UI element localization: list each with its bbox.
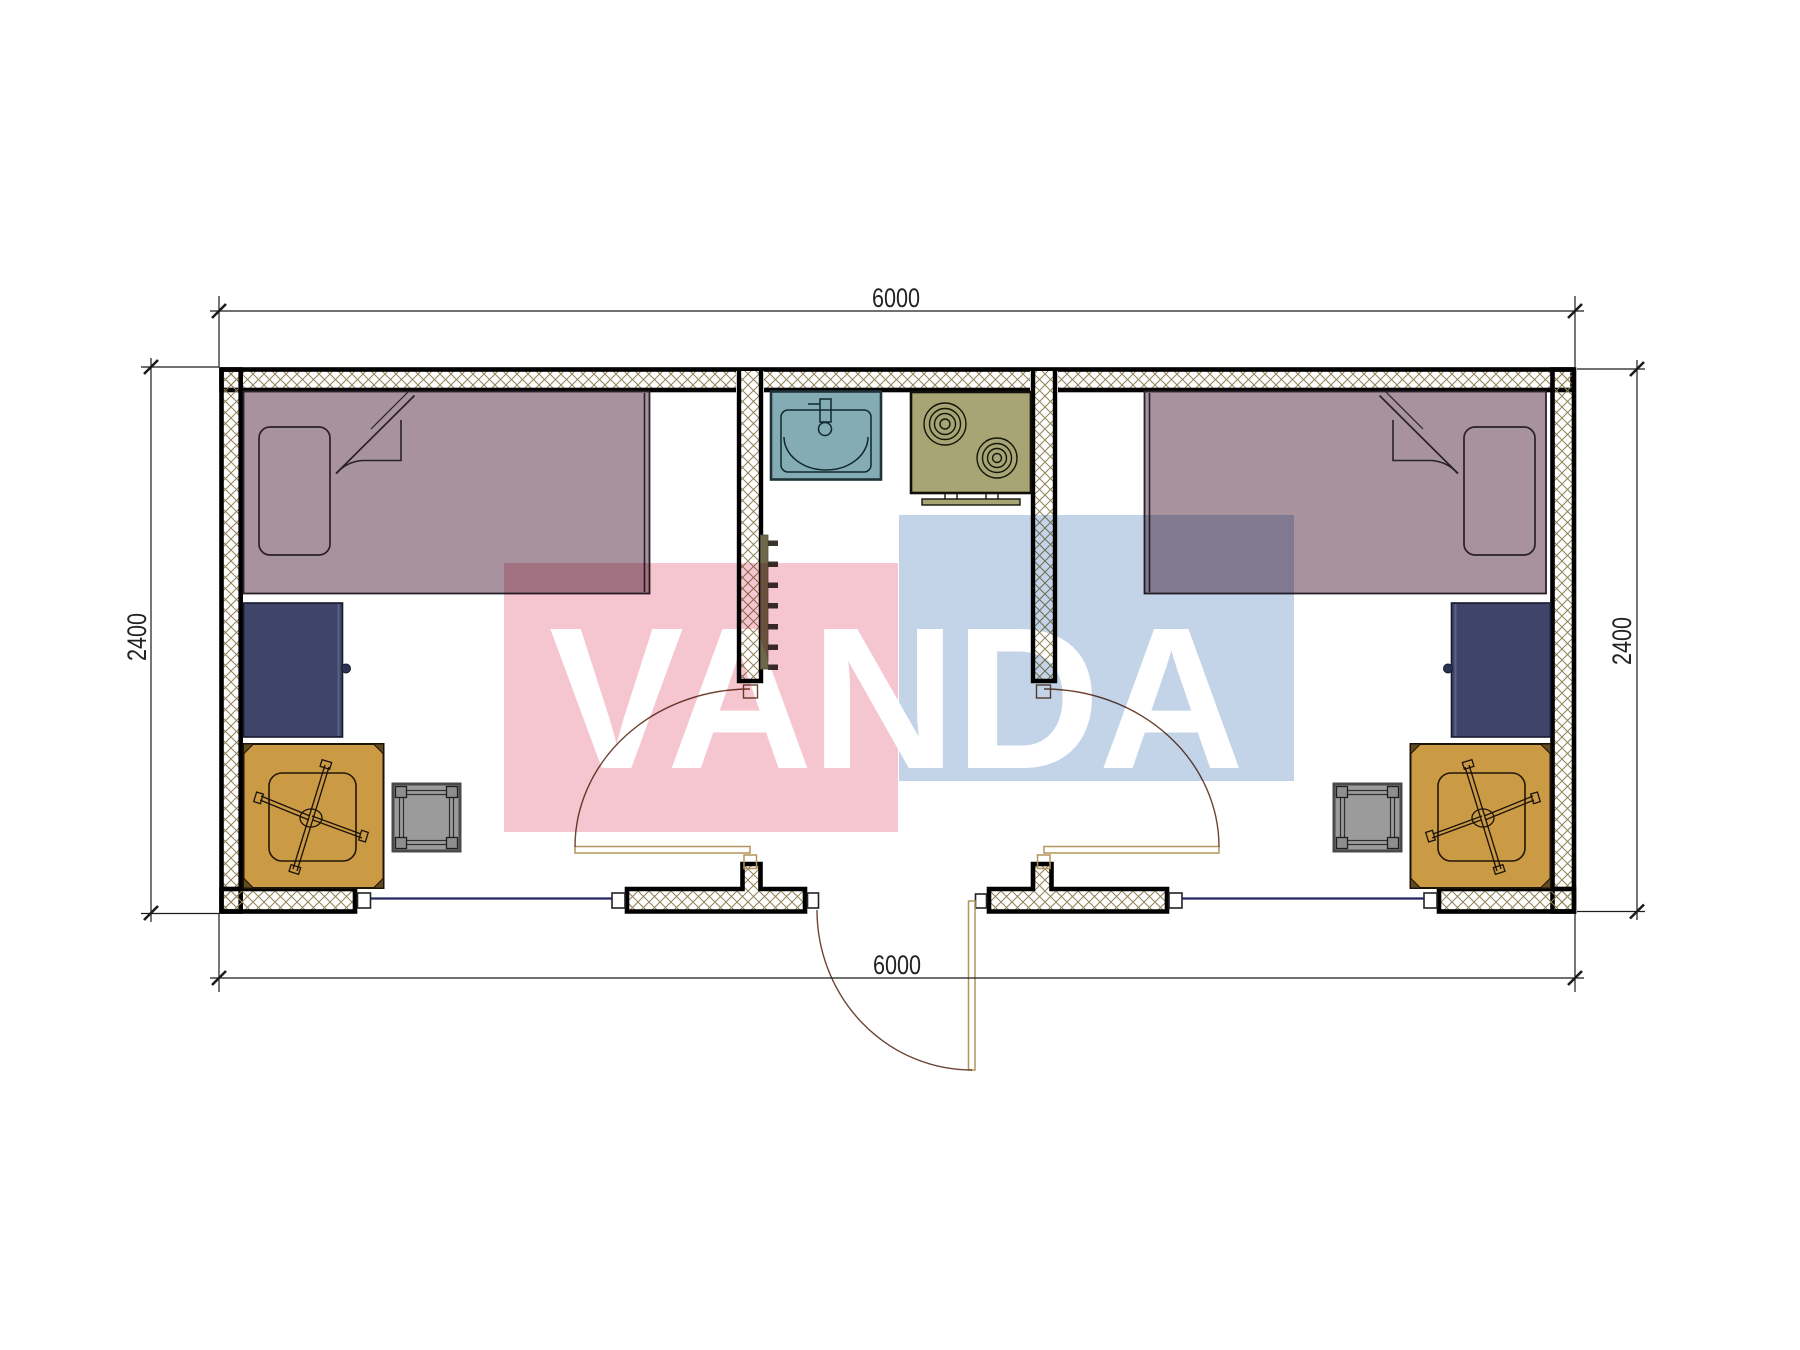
svg-text:VANDA: VANDA [549,585,1242,811]
